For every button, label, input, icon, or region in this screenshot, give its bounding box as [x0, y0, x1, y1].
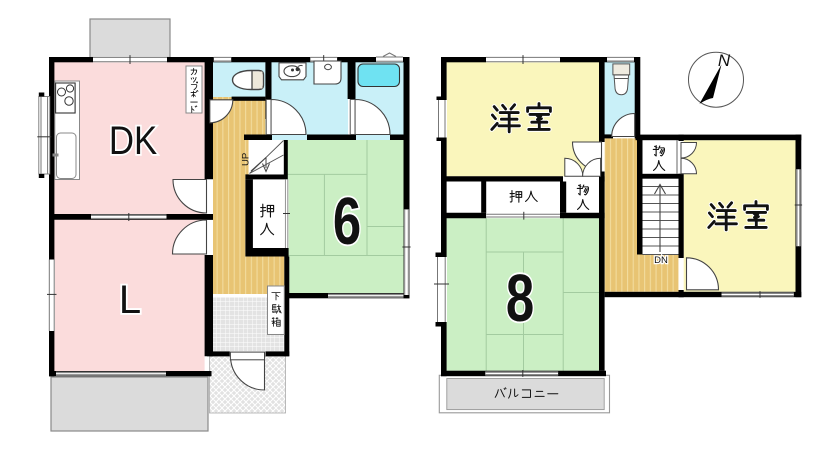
svg-text:L: L	[119, 278, 141, 322]
svg-text:DK: DK	[109, 118, 157, 163]
svg-text:6: 6	[333, 183, 361, 258]
svg-text:DN: DN	[654, 255, 668, 266]
svg-text:N: N	[718, 51, 731, 70]
svg-text:UP: UP	[241, 153, 252, 166]
svg-text:8: 8	[506, 260, 534, 335]
